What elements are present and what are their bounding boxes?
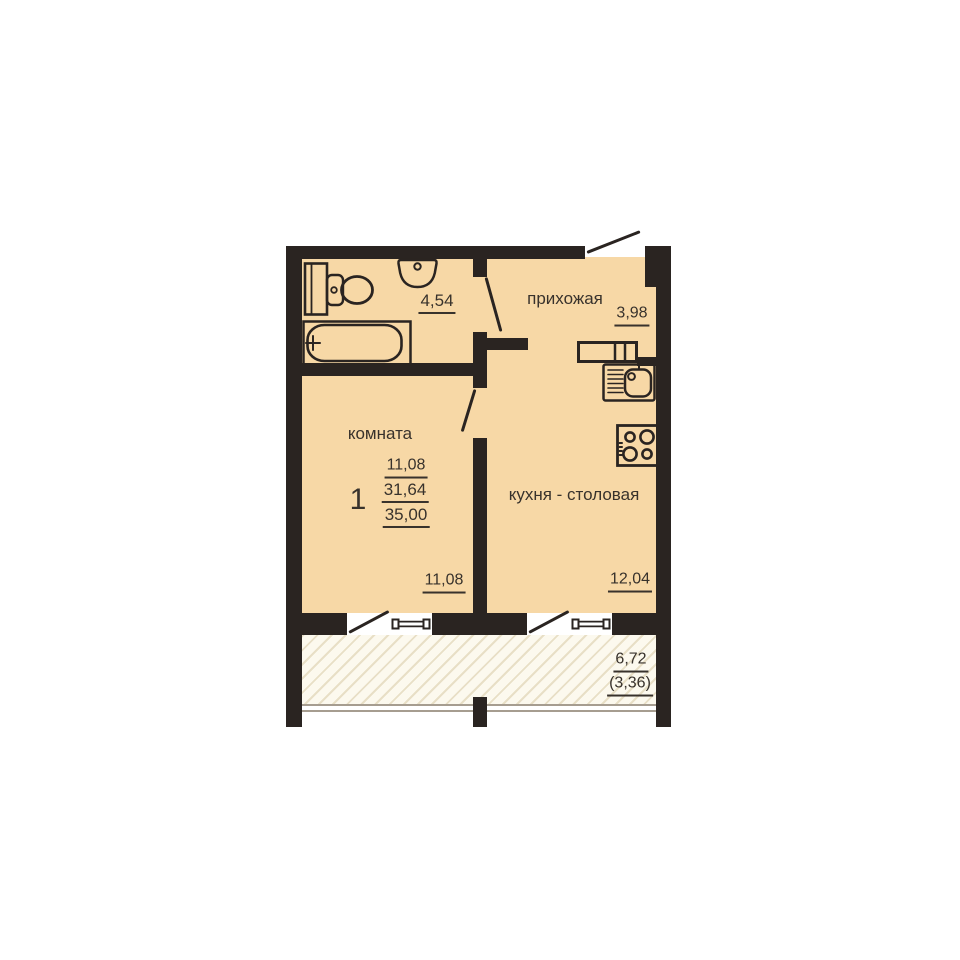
wall-hall-kitchen-stub xyxy=(487,338,528,350)
hallway-label: прихожая xyxy=(527,290,603,308)
balcony-area-label: 6,72 xyxy=(613,652,648,673)
rooms-count-label: 1 xyxy=(350,484,367,516)
window-icon xyxy=(570,613,612,635)
wall-bottom-segment-3 xyxy=(612,613,656,635)
toilet-icon xyxy=(303,261,375,318)
kitchen-counter-icon xyxy=(577,341,638,364)
window-icon xyxy=(390,613,432,635)
wall-corner-top-right xyxy=(645,246,671,287)
balcony-center-post xyxy=(473,697,487,727)
kitchen-sink-icon xyxy=(602,362,657,403)
floorplan-canvas: прихожая 3,98 4,54 комната 1 11,08 31,64… xyxy=(0,0,960,960)
hallway-area-label: 3,98 xyxy=(614,306,649,327)
wall-bottom-segment-1 xyxy=(302,613,347,635)
entrance-door-swing-icon xyxy=(586,230,640,254)
wall-right xyxy=(656,287,671,727)
wall-bottom-segment-2 xyxy=(432,613,527,635)
total-area-label: 35,00 xyxy=(383,506,430,528)
wall-left xyxy=(286,246,302,727)
bathroom-area-label: 4,54 xyxy=(418,292,455,314)
kitchen-area-label: 12,04 xyxy=(608,572,652,593)
wall-room-kitchen xyxy=(473,438,487,613)
stove-icon xyxy=(616,424,659,467)
kitchen-dining-label: кухня - столовая xyxy=(509,486,640,504)
balcony-area xyxy=(302,635,656,704)
wall-bathroom-hall-upper xyxy=(473,259,487,277)
area-without-balcony-label: 31,64 xyxy=(382,481,429,503)
bathtub-icon xyxy=(302,320,412,366)
living-room-area-label: 11,08 xyxy=(423,573,466,594)
balcony-area-coefficient-label: (3,36) xyxy=(607,676,653,697)
living-area-label: 11,08 xyxy=(385,458,428,479)
washbasin-icon xyxy=(396,257,439,290)
room-window-opening xyxy=(390,613,432,635)
wall-bathroom-hall-pier xyxy=(473,332,487,388)
kitchen-window-opening xyxy=(570,613,612,635)
living-room-label: комната xyxy=(348,425,412,443)
